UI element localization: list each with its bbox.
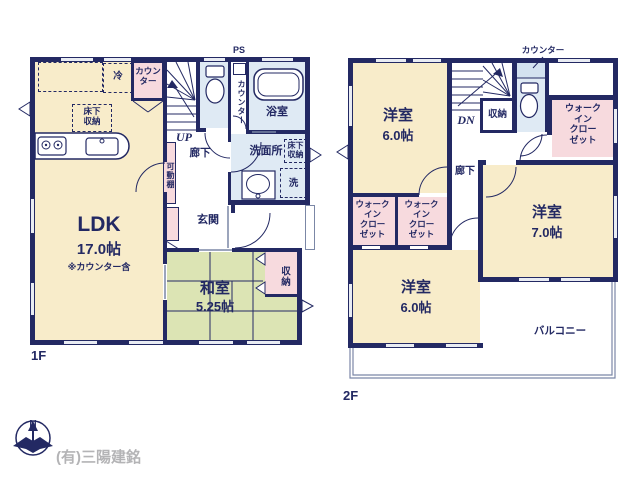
genkan-diagonal <box>166 241 182 251</box>
hallway-1f-label: 廊下 <box>183 147 217 159</box>
bedroom-sw-name: 洋室 <box>383 279 449 297</box>
stairs-2f-arrow <box>493 68 503 77</box>
door-toilet-2f <box>520 134 542 156</box>
floor2-label: 2F <box>343 388 373 403</box>
ps-counter-label: カウンター <box>233 77 246 127</box>
door-entrance <box>235 213 270 248</box>
door-kitchen-flap <box>133 101 148 112</box>
bathroom-label: 浴室 <box>249 106 305 119</box>
kitchen-counter-label: カウン ター <box>134 66 162 86</box>
bedroom-nw-name: 洋室 <box>366 107 430 125</box>
laundry-label: 洗 <box>280 178 307 189</box>
ldk-name: LDK <box>38 213 160 238</box>
door-ldk <box>136 163 165 192</box>
compass-icon: N <box>13 419 53 455</box>
hallway-2f-label: 廊下 <box>449 166 481 178</box>
closet-door-marks <box>256 253 265 294</box>
bedroom-se-name: 洋室 <box>514 204 580 222</box>
stairs-2f <box>452 63 510 110</box>
kitchen-sink <box>86 138 118 155</box>
door-kitchen-flap <box>148 101 163 112</box>
fridge-label: 冷 <box>103 71 133 82</box>
stairs-1f-arrow <box>167 80 178 88</box>
bedroom-nw-size: 6.0帖 <box>366 128 430 143</box>
washitsu-size: 5.25帖 <box>182 299 248 314</box>
toilet-fixture-2f <box>517 78 545 118</box>
wic-east-label: ウォーク イン クロー ゼット <box>559 103 607 145</box>
closet-1f-label: 収納 <box>272 259 290 293</box>
door-bedroom-sw <box>450 218 478 246</box>
floor-storage-label: 床下 収納 <box>82 106 102 126</box>
stairs-1f <box>167 62 196 130</box>
ps-label: PS <box>230 45 248 56</box>
counter-2f-label: カウンター <box>519 45 567 55</box>
door-bedroom-se <box>486 167 516 197</box>
wic-sw1-label: ウォーク イン クロー ゼット <box>351 199 394 239</box>
entrance-label: 玄関 <box>186 214 230 227</box>
washitsu-name: 和室 <box>182 280 248 298</box>
kitchen-counter <box>35 133 129 159</box>
bedroom-sw-size: 6.0帖 <box>383 300 449 315</box>
ldk-size: 17.0帖 <box>38 241 160 259</box>
wic-sw2-label: ウォーク イン クロー ゼット <box>399 199 444 239</box>
company-name: (有)三陽建銘 <box>56 449 196 467</box>
compass-n-label: N <box>29 419 36 430</box>
floor1-label: 1F <box>31 348 61 363</box>
closet-2f-label: 収納 <box>482 109 513 120</box>
door-wic-east <box>520 135 547 162</box>
movable-shelf-label: 可動棚 <box>164 152 175 198</box>
counter-pointer <box>533 57 543 68</box>
washroom-floor-storage-label: 床下 収納 <box>285 141 306 160</box>
bathtub <box>254 69 303 100</box>
door-bedroom-nw <box>419 167 447 195</box>
toilet-fixture-1f <box>206 66 224 103</box>
floorplan-canvas: N LDK 17.0帖 ※カウンター含 冷 カウン ター 床下 収納 PS カウ… <box>0 0 640 480</box>
balcony-label: バルコニー <box>518 325 602 337</box>
washbasin <box>242 171 275 199</box>
bedroom-se-size: 7.0帖 <box>514 225 580 240</box>
stairs-down-label: DN <box>451 113 481 127</box>
stairs-up-label: UP <box>170 130 198 144</box>
ldk-note: ※カウンター含 <box>38 262 160 273</box>
